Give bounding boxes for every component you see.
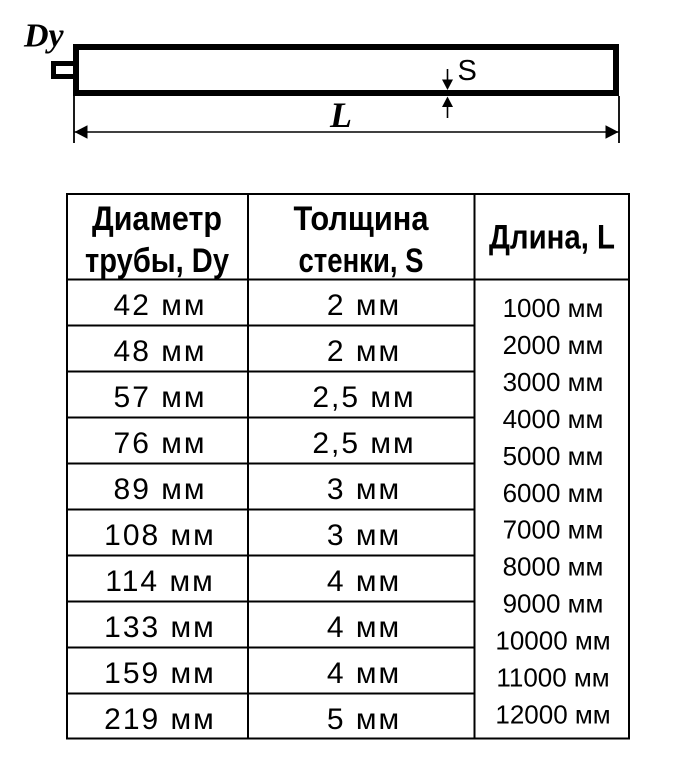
svg-text:10000 мм: 10000 мм <box>495 626 610 656</box>
svg-text:1000 мм: 1000 мм <box>503 293 604 323</box>
svg-text:3000 мм: 3000 мм <box>503 367 604 397</box>
svg-text:2 мм: 2 мм <box>327 289 401 322</box>
svg-text:133 мм: 133 мм <box>104 611 216 644</box>
svg-text:2000 мм: 2000 мм <box>503 330 604 360</box>
svg-text:108 мм: 108 мм <box>104 519 216 552</box>
svg-text:57 мм: 57 мм <box>114 381 207 414</box>
svg-text:11000 мм: 11000 мм <box>496 663 609 693</box>
svg-text:Dy: Dy <box>23 18 65 55</box>
svg-text:42 мм: 42 мм <box>114 289 207 322</box>
svg-text:89 мм: 89 мм <box>114 473 207 506</box>
svg-text:9000 мм: 9000 мм <box>503 589 604 619</box>
svg-text:4 мм: 4 мм <box>327 565 401 598</box>
svg-text:4000 мм: 4000 мм <box>503 404 604 434</box>
svg-text:6000 мм: 6000 мм <box>503 478 604 508</box>
svg-text:стенки, S: стенки, S <box>299 242 424 280</box>
svg-text:48 мм: 48 мм <box>114 335 207 368</box>
svg-text:159 мм: 159 мм <box>104 657 216 690</box>
svg-text:2 мм: 2 мм <box>327 335 401 368</box>
svg-text:3 мм: 3 мм <box>327 519 401 552</box>
svg-text:2,5 мм: 2,5 мм <box>312 381 415 414</box>
svg-text:трубы, Dy: трубы, Dy <box>85 242 229 280</box>
svg-text:4 мм: 4 мм <box>327 611 401 644</box>
svg-text:5000 мм: 5000 мм <box>503 441 604 471</box>
svg-text:5 мм: 5 мм <box>327 703 401 736</box>
svg-text:219 мм: 219 мм <box>104 703 216 736</box>
svg-text:Длина, L: Длина, L <box>489 219 615 257</box>
svg-text:Диаметр: Диаметр <box>92 200 222 238</box>
svg-text:2,5 мм: 2,5 мм <box>312 427 415 460</box>
svg-text:8000 мм: 8000 мм <box>503 552 604 582</box>
svg-text:3 мм: 3 мм <box>327 473 401 506</box>
svg-text:4 мм: 4 мм <box>327 657 401 690</box>
svg-text:7000 мм: 7000 мм <box>503 515 604 545</box>
svg-text:Толщина: Толщина <box>294 200 430 238</box>
svg-text:76 мм: 76 мм <box>114 427 207 460</box>
svg-text:114 мм: 114 мм <box>105 565 214 598</box>
svg-text:12000 мм: 12000 мм <box>495 700 610 730</box>
svg-text:L: L <box>329 95 352 135</box>
svg-text:S: S <box>458 55 477 87</box>
